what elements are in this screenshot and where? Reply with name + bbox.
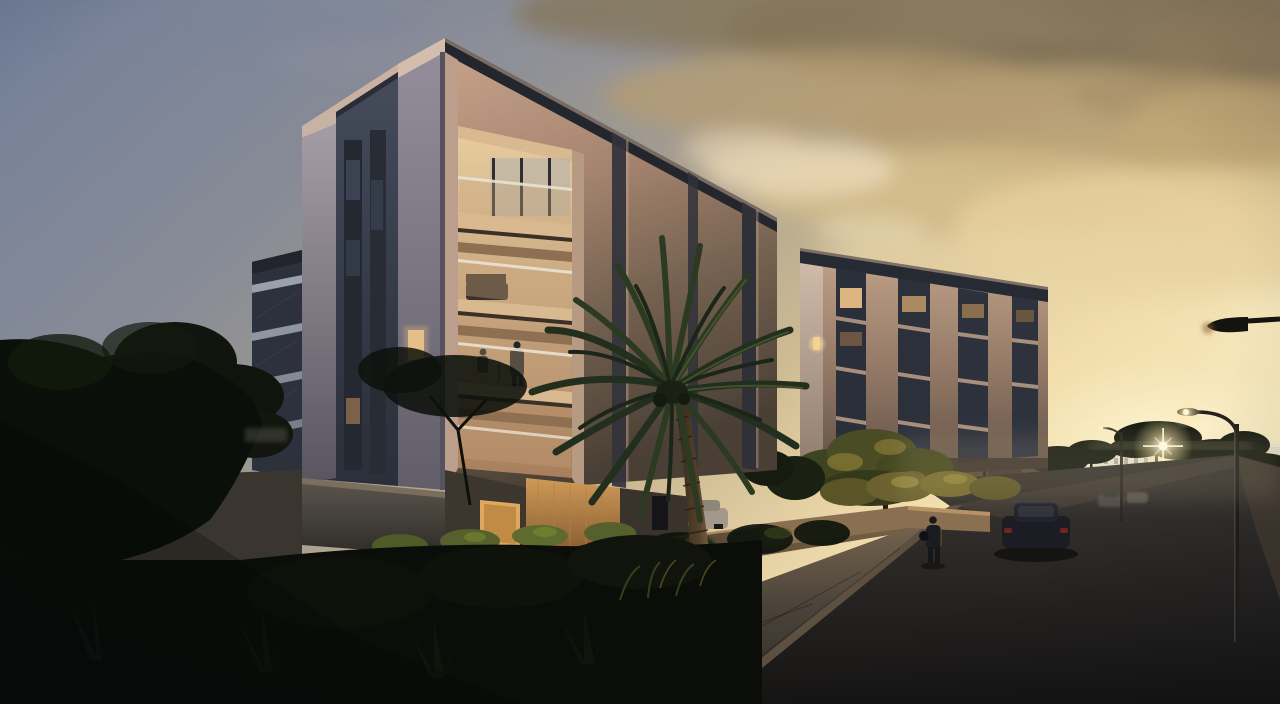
vignette (0, 0, 1280, 704)
architectural-render (0, 0, 1280, 704)
